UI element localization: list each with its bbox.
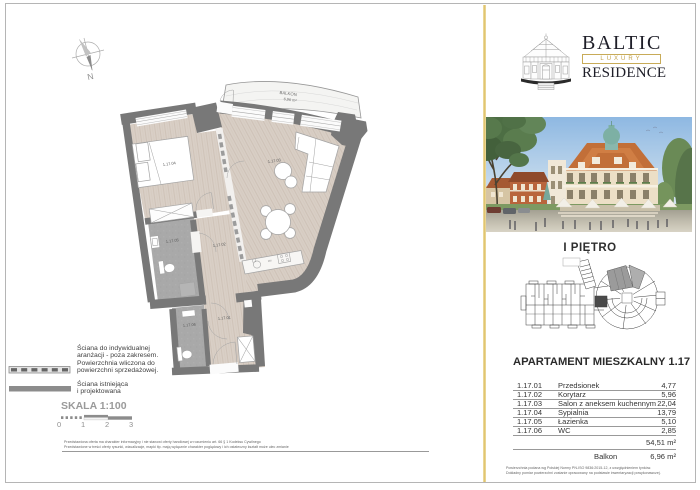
svg-text:ZM: ZM xyxy=(267,258,271,263)
svg-text:N: N xyxy=(86,71,94,82)
